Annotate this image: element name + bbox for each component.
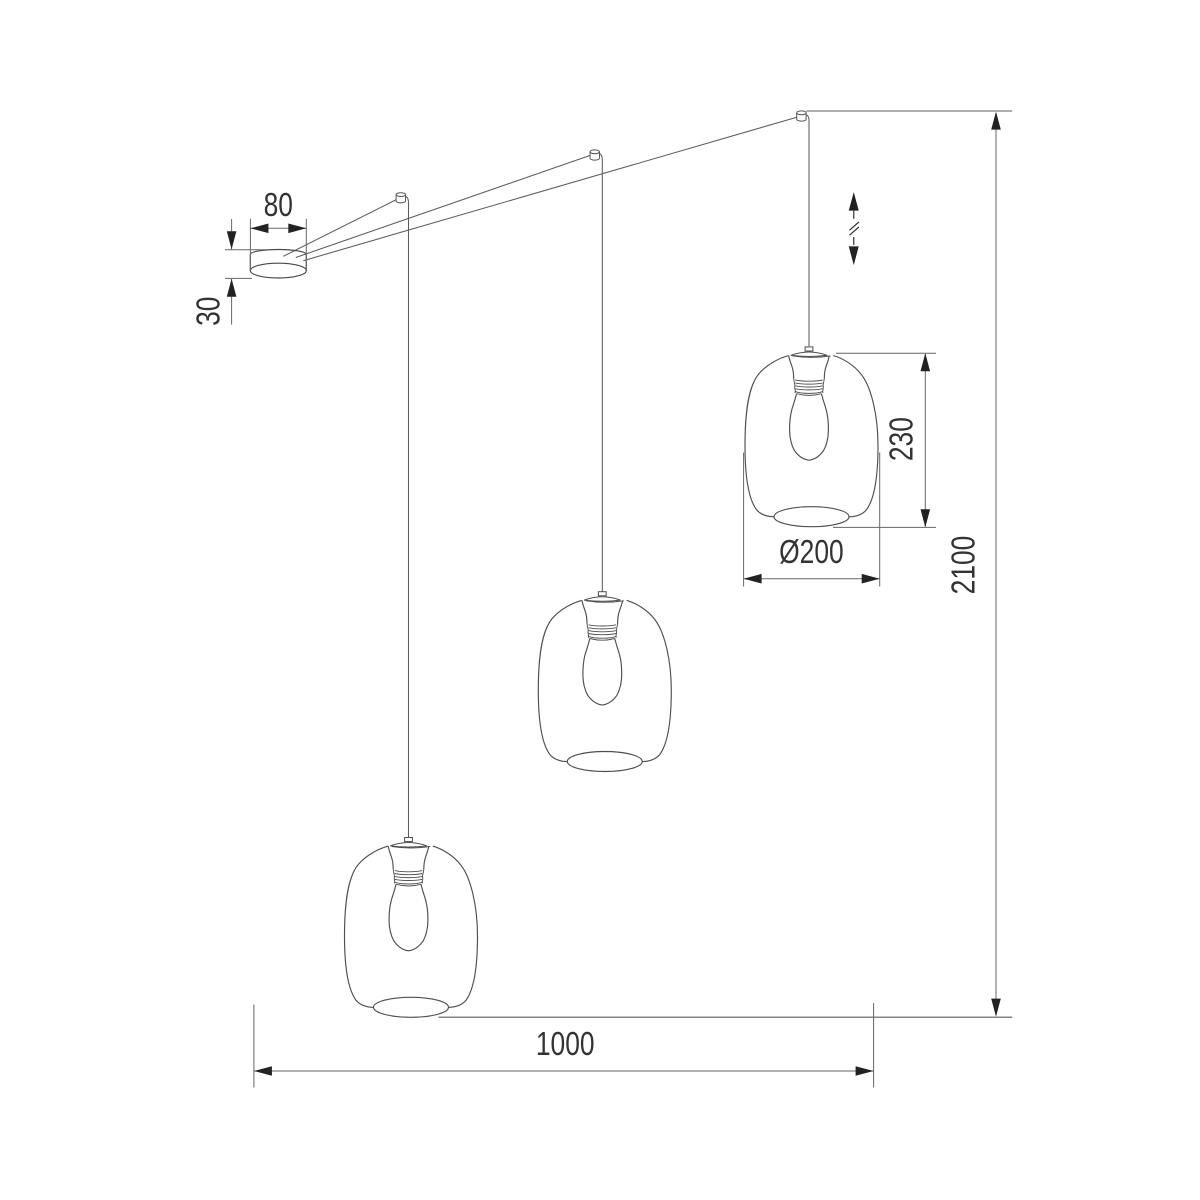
- svg-text:1000: 1000: [536, 1026, 595, 1062]
- svg-text:230: 230: [884, 417, 920, 461]
- svg-text:30: 30: [191, 297, 227, 326]
- svg-text:Ø200: Ø200: [779, 534, 844, 570]
- svg-text:2100: 2100: [946, 536, 982, 595]
- svg-text:80: 80: [264, 187, 293, 223]
